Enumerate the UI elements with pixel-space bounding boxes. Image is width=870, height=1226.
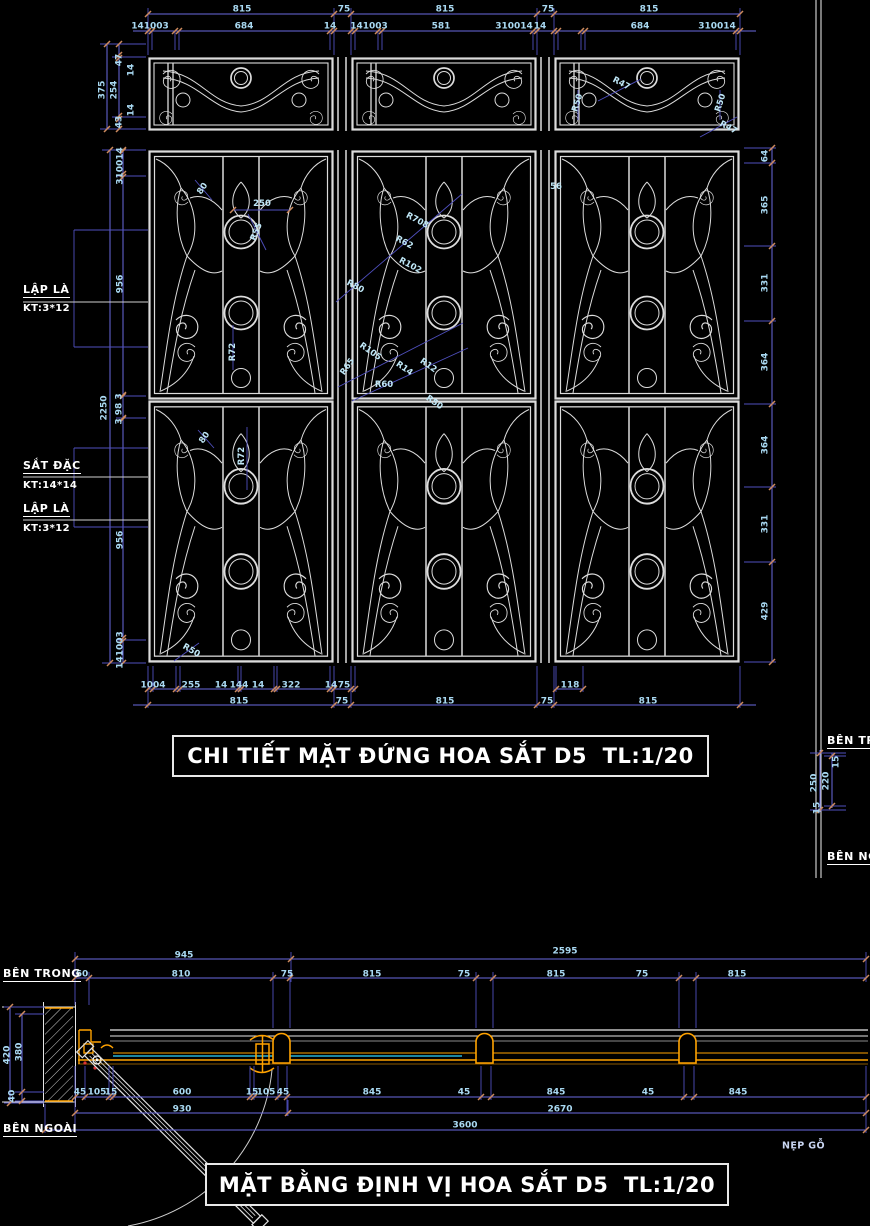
dimension-label: 331 [762, 274, 771, 293]
dimension-label: 45 [74, 1089, 87, 1098]
nep-go-label: NẸP GỖ [782, 1141, 825, 1151]
tick-marks [7, 11, 869, 1133]
kt-14x14-label: KT:14*14 [23, 481, 77, 491]
ben-ngoai-label: BÊN NGOÀI [3, 1123, 77, 1137]
elevation-title: CHI TIẾT MẶT ĐỨNG HOA SẮT D5 TL:1/20 [172, 735, 709, 777]
radius-callout: R72 [238, 447, 247, 465]
dimension-label: 14 [215, 682, 228, 691]
dimension-label: 322 [282, 682, 301, 691]
dimension-label: 956 [117, 275, 126, 294]
radius-callout: 56 [550, 183, 562, 192]
dimension-label: 380 [16, 1043, 25, 1062]
dimension-label: 815 [639, 698, 658, 707]
lap-la-label: LẬP LÀ [23, 284, 70, 298]
dimension-label: 365 [762, 196, 771, 215]
ben-trong-label: BÊN TRONG [3, 968, 81, 982]
dimension-label: 956 [117, 531, 126, 550]
dimension-label: 2595 [552, 948, 577, 957]
lap-la-label: LẬP LÀ [23, 503, 70, 517]
dimension-label: 845 [729, 1089, 748, 1098]
dimension-label: 1004 [140, 682, 165, 691]
dimension-label: 105 [88, 1089, 107, 1098]
ben-trong-label: BÊN TRONG [827, 735, 870, 749]
dimension-label: 47 [116, 54, 125, 67]
dimension-lines [4, 8, 866, 1133]
dimension-label: 600 [173, 1089, 192, 1098]
dimension-label: 815 [233, 6, 252, 15]
dimension-label: 75 [336, 698, 349, 707]
dimension-label: 105 [257, 1089, 276, 1098]
dimension-label: 930 [173, 1106, 192, 1115]
divider-posts [338, 57, 549, 663]
dimension-label: 2670 [547, 1106, 572, 1115]
dimension-label: 45 [277, 1089, 290, 1098]
dimension-label: 75 [541, 698, 554, 707]
dimension-label: 845 [547, 1089, 566, 1098]
dimension-label: 810 [172, 971, 191, 980]
radius-callout: R60 [375, 381, 393, 390]
radius-callout: R72 [229, 343, 238, 361]
dimension-label: 43 [116, 116, 125, 129]
dimension-label: 3600 [452, 1122, 477, 1131]
dimension-label: 420 [4, 1046, 13, 1065]
dimension-label: 815 [728, 971, 747, 980]
dimension-label: 220 [823, 772, 832, 791]
dimension-label: 118 [561, 682, 580, 691]
dimension-label: 45 [642, 1089, 655, 1098]
dimension-label: 2250 [101, 395, 110, 420]
dimension-label: 45 [458, 1089, 471, 1098]
kt-3x12-label: KT:3*12 [23, 304, 70, 314]
dimension-label: 364 [762, 436, 771, 455]
dimension-label: 250 [811, 774, 820, 793]
dimension-label: 815 [640, 6, 659, 15]
dimension-label: 14 [324, 23, 337, 32]
dimension-label: 684 [235, 23, 254, 32]
dimension-label: 40 [9, 1090, 18, 1103]
dimension-label: 75 [338, 682, 351, 691]
dimension-label: 141003 [131, 23, 169, 32]
radius-callout: 250 [253, 200, 271, 209]
dimension-label: 815 [230, 698, 249, 707]
dimension-label: 75 [458, 971, 471, 980]
dimension-label: 945 [175, 952, 194, 961]
dimension-label: 75 [636, 971, 649, 980]
dimension-label: 429 [762, 602, 771, 621]
dimension-label: 14 [128, 64, 137, 77]
dimension-label: 14 [325, 682, 338, 691]
dimension-label: 75 [338, 6, 351, 15]
dimension-label: 144 [230, 682, 249, 691]
drawing-canvas [0, 0, 870, 1226]
dimension-label: 310014 [495, 23, 533, 32]
post-profiles [273, 1034, 696, 1064]
dimension-label: 14 [534, 23, 547, 32]
dimension-label: 75 [281, 971, 294, 980]
dimension-label: 254 [111, 81, 120, 100]
dimension-label: 310014 [698, 23, 736, 32]
dimension-label: 815 [363, 971, 382, 980]
dimension-label: 15 [814, 802, 823, 815]
dimension-label: 310014 [117, 147, 126, 185]
dimension-label: 3 98 3 [116, 393, 125, 424]
dimension-label: 375 [99, 81, 108, 100]
dimension-label: 331 [762, 515, 771, 534]
dimension-label: 14 [252, 682, 265, 691]
ben-ngoai-label: BÊN NGOÀI [827, 851, 870, 865]
plan-title: MẶT BẰNG ĐỊNH VỊ HOA SẮT D5 TL:1/20 [205, 1163, 729, 1206]
dimension-label: 14 [128, 104, 137, 117]
dimension-label: 141003 [350, 23, 388, 32]
dimension-label: 75 [542, 6, 555, 15]
dimension-label: 64 [762, 150, 771, 163]
dimension-label: 684 [631, 23, 650, 32]
dimension-label: 845 [363, 1089, 382, 1098]
sat-dac-label: SẮT ĐẶC [23, 460, 81, 474]
door-jamb-bracket [79, 1030, 113, 1064]
marker-dot [83, 1061, 86, 1064]
dimension-label: 255 [182, 682, 201, 691]
dimension-label: 364 [762, 353, 771, 372]
dimension-label: 815 [547, 971, 566, 980]
dimension-label: 15 [833, 756, 842, 769]
cad-viewport: 8157581575815141003684141410035813100141… [0, 0, 870, 1226]
dimension-label: 141003 [117, 631, 126, 669]
dimension-label: 581 [432, 23, 451, 32]
dimension-label: 815 [436, 698, 455, 707]
dimension-label: 15 [105, 1089, 118, 1098]
sheet-border [816, 0, 821, 878]
kt-3x12-label: KT:3*12 [23, 524, 70, 534]
dimension-label: 815 [436, 6, 455, 15]
wall-hatch [45, 1008, 73, 1101]
